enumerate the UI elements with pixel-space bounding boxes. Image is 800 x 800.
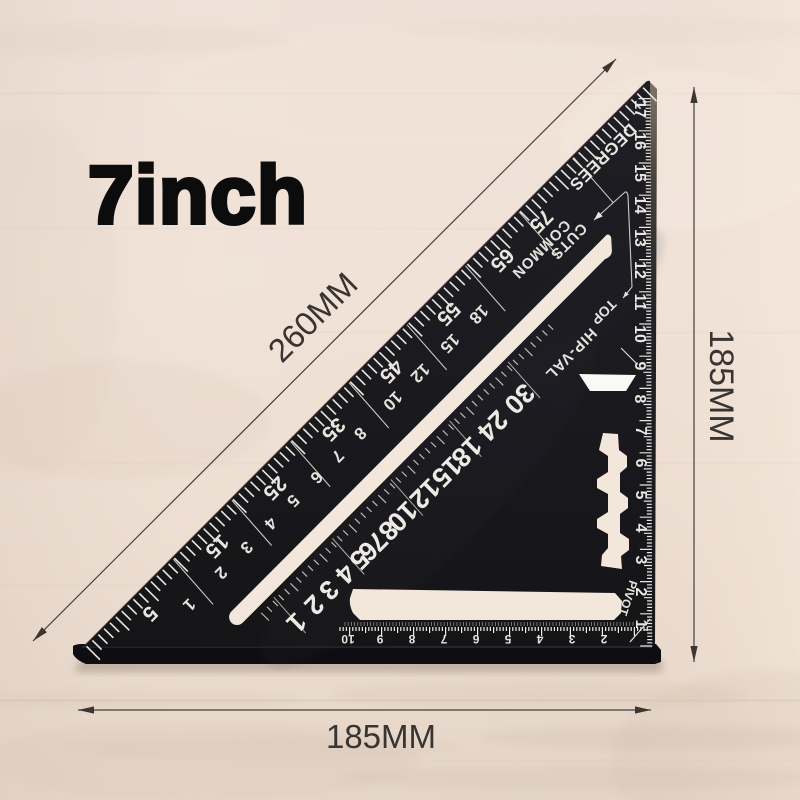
svg-text:185MM: 185MM <box>326 718 436 755</box>
svg-text:4: 4 <box>536 632 543 646</box>
svg-text:11: 11 <box>631 294 648 311</box>
svg-text:2: 2 <box>600 632 607 646</box>
svg-text:17: 17 <box>631 100 648 118</box>
svg-text:6: 6 <box>632 459 649 468</box>
svg-text:13: 13 <box>631 229 648 247</box>
svg-text:16: 16 <box>631 132 648 150</box>
svg-text:10: 10 <box>341 632 355 646</box>
svg-text:8: 8 <box>631 395 648 404</box>
svg-text:4: 4 <box>632 524 649 533</box>
svg-text:7inch: 7inch <box>88 150 308 241</box>
svg-text:8: 8 <box>408 632 415 646</box>
svg-text:5: 5 <box>632 491 649 500</box>
svg-text:14: 14 <box>631 196 648 214</box>
svg-text:6: 6 <box>472 632 479 646</box>
svg-text:9: 9 <box>376 632 383 646</box>
svg-text:9: 9 <box>631 362 648 371</box>
svg-text:5: 5 <box>504 632 511 646</box>
svg-text:3: 3 <box>568 632 575 646</box>
svg-text:15: 15 <box>631 164 648 182</box>
svg-text:3: 3 <box>632 556 649 565</box>
svg-text:7: 7 <box>440 632 447 646</box>
svg-text:7: 7 <box>632 427 649 436</box>
svg-text:185MM: 185MM <box>702 329 740 442</box>
svg-text:12: 12 <box>631 261 648 279</box>
svg-text:10: 10 <box>631 325 648 343</box>
